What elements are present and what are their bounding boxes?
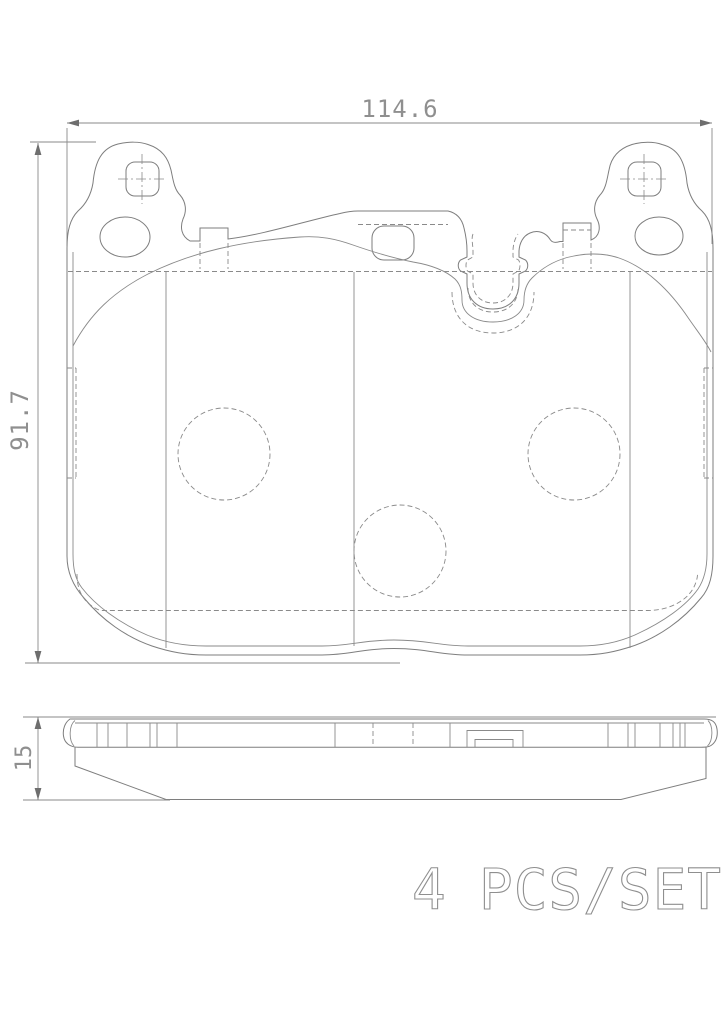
thickness-arrowhead-bottom bbox=[35, 788, 42, 800]
width-arrowhead-right bbox=[700, 120, 712, 127]
u-notch-hidden-line bbox=[466, 234, 520, 303]
u-notch-lower-hidden-arc-2 bbox=[452, 292, 534, 333]
side-view-friction-profile bbox=[75, 747, 706, 800]
thickness-dimension-label: 15 bbox=[12, 745, 37, 772]
wear-hole-left bbox=[178, 408, 270, 500]
height-arrowhead-top bbox=[35, 143, 42, 155]
u-notch-lower-hidden-arc-1 bbox=[468, 288, 518, 312]
left-ear-oval-hole bbox=[100, 217, 150, 257]
height-dimension-label: 91.7 bbox=[6, 389, 34, 451]
width-dimension-label: 114.6 bbox=[361, 95, 438, 123]
left-edge-hidden-lines bbox=[67, 368, 76, 478]
thickness-arrowhead-top bbox=[35, 717, 42, 729]
width-dimension: 114.6 bbox=[67, 95, 712, 246]
brake-pad-side-view bbox=[23, 717, 717, 800]
right-edge-hidden-lines bbox=[704, 368, 713, 478]
wear-hole-center bbox=[354, 505, 446, 597]
drawing-sheet: 114.6 91.7 bbox=[0, 0, 724, 1024]
right-ear-oval-hole bbox=[635, 217, 683, 255]
left-tab-hidden-lines bbox=[200, 243, 228, 269]
left-ear-hole-centerlines bbox=[118, 154, 166, 204]
height-arrowhead-bottom bbox=[35, 651, 42, 663]
backing-plate-outline bbox=[67, 142, 713, 655]
side-view-strip-end-curls bbox=[70, 721, 712, 747]
side-view-segment-lines bbox=[97, 723, 685, 747]
side-view-center-recess bbox=[467, 731, 523, 748]
unit-label: PCS/SET bbox=[479, 858, 722, 923]
brake-pad-front-view bbox=[67, 142, 713, 655]
wear-hole-right bbox=[528, 408, 620, 500]
friction-surface-curve bbox=[73, 237, 711, 352]
quantity-annotation: 4 PCS/SET bbox=[412, 858, 722, 923]
technical-drawing-canvas: 114.6 91.7 bbox=[0, 0, 724, 1024]
thickness-dimension: 15 bbox=[12, 717, 41, 800]
side-view-hidden-segment-lines bbox=[373, 723, 413, 747]
right-ear-hole-centerlines bbox=[620, 154, 668, 204]
height-dimension: 91.7 bbox=[6, 142, 400, 663]
quantity-value: 4 bbox=[412, 858, 447, 923]
friction-segment-edges bbox=[166, 272, 630, 648]
center-tab-hole bbox=[372, 226, 414, 260]
right-tab-hidden-lines bbox=[563, 230, 591, 269]
friction-bottom-hidden-line bbox=[77, 574, 698, 611]
backing-plate-inner-edge bbox=[73, 252, 707, 646]
width-arrowhead-left bbox=[67, 120, 79, 127]
